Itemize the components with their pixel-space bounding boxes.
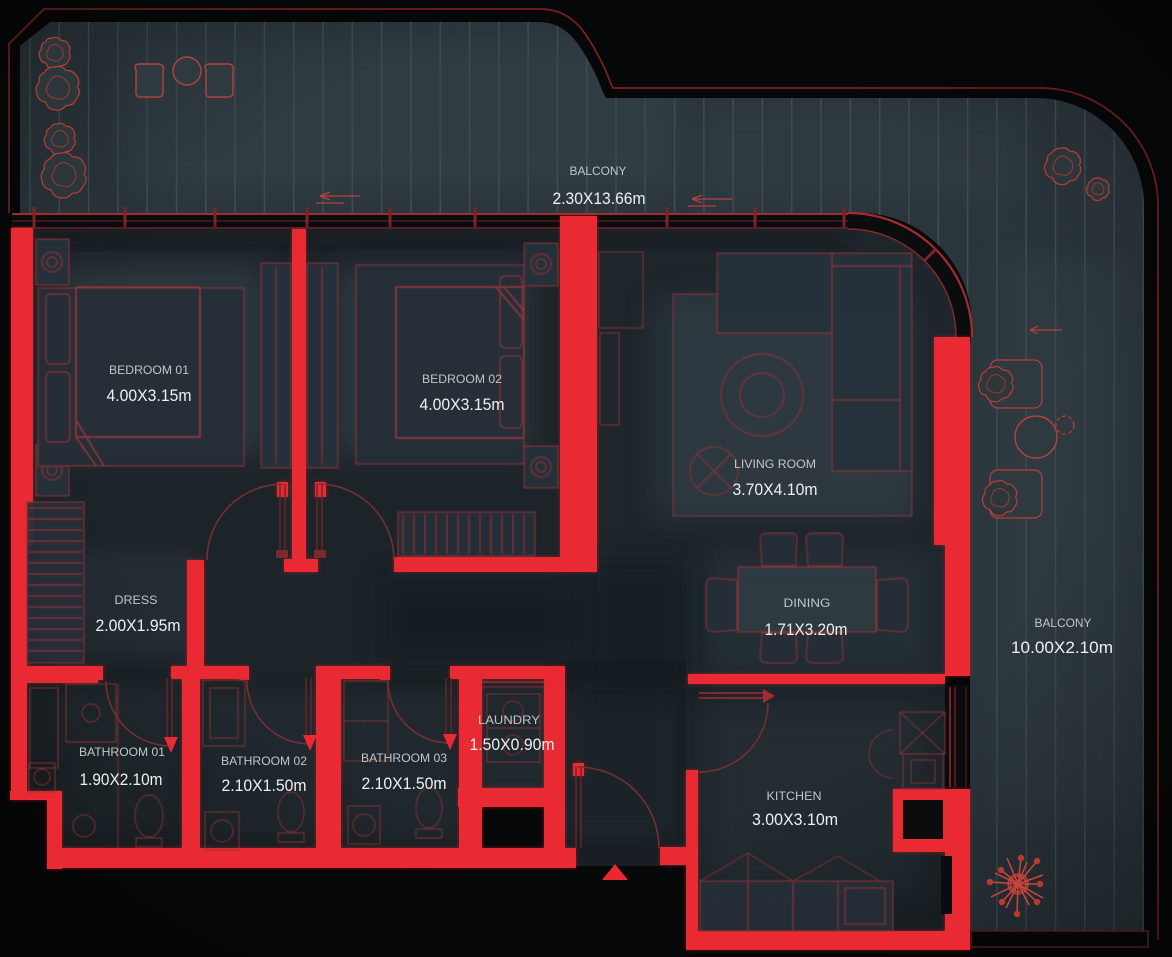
svg-text:1.90X2.10m: 1.90X2.10m	[80, 770, 163, 789]
svg-text:3.70X4.10m: 3.70X4.10m	[733, 480, 818, 499]
svg-text:2.10X1.50m: 2.10X1.50m	[362, 774, 447, 793]
svg-text:BATHROOM 03: BATHROOM 03	[361, 751, 447, 765]
svg-text:DRESS: DRESS	[115, 593, 158, 607]
svg-text:BATHROOM 01: BATHROOM 01	[79, 745, 165, 759]
svg-text:KITCHEN: KITCHEN	[767, 789, 822, 803]
svg-text:BALCONY: BALCONY	[570, 164, 627, 178]
svg-text:10.00X2.10m: 10.00X2.10m	[1011, 638, 1113, 657]
svg-text:BALCONY: BALCONY	[1035, 616, 1092, 630]
svg-text:4.00X3.15m: 4.00X3.15m	[420, 395, 505, 414]
svg-text:3.00X3.10m: 3.00X3.10m	[752, 810, 838, 829]
svg-text:BEDROOM 01: BEDROOM 01	[109, 363, 189, 377]
svg-text:1.71X3.20m: 1.71X3.20m	[765, 620, 848, 639]
svg-text:LAUNDRY: LAUNDRY	[478, 713, 540, 727]
svg-text:2.10X1.50m: 2.10X1.50m	[222, 776, 307, 795]
svg-text:2.00X1.95m: 2.00X1.95m	[96, 616, 181, 635]
svg-text:4.00X3.15m: 4.00X3.15m	[107, 386, 192, 405]
svg-text:BEDROOM 02: BEDROOM 02	[422, 372, 502, 386]
svg-text:BATHROOM 02: BATHROOM 02	[221, 754, 307, 768]
svg-text:1.50X0.90m: 1.50X0.90m	[470, 735, 555, 754]
svg-text:DINING: DINING	[784, 596, 831, 610]
svg-text:2.30X13.66m: 2.30X13.66m	[553, 189, 646, 208]
svg-text:LIVING ROOM: LIVING ROOM	[734, 457, 816, 471]
